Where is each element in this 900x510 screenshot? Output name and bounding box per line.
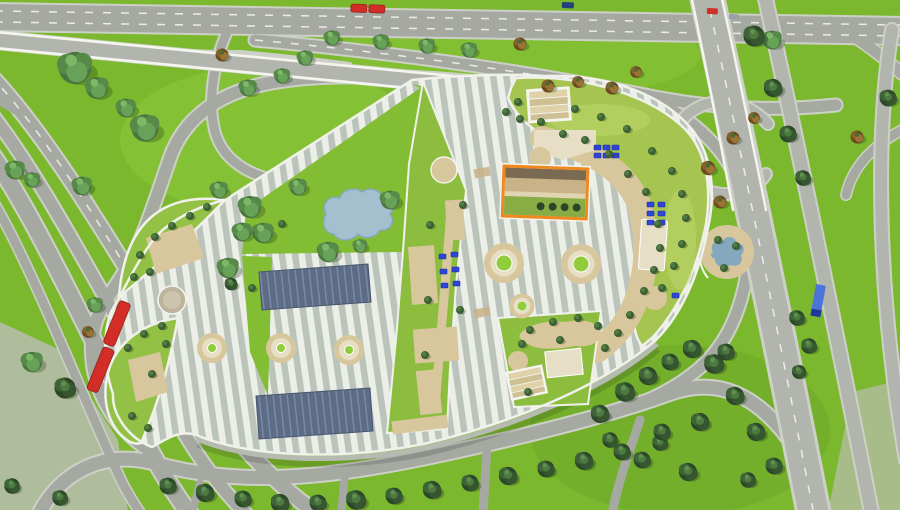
gray-car bbox=[729, 14, 739, 19]
bench bbox=[594, 145, 601, 150]
skylight-planter bbox=[334, 335, 364, 365]
access-lane bbox=[341, 474, 345, 510]
navy-car bbox=[562, 2, 574, 8]
orange-courtyard bbox=[499, 163, 591, 222]
bench bbox=[603, 145, 610, 150]
bench bbox=[672, 293, 679, 298]
red-car bbox=[707, 8, 718, 14]
southeast-plaza bbox=[545, 348, 584, 378]
bench bbox=[612, 145, 619, 150]
bench bbox=[452, 267, 459, 272]
site-plan-rendering bbox=[0, 0, 900, 510]
solar-panel-array-south bbox=[256, 388, 373, 439]
strip-plaza bbox=[416, 369, 442, 415]
access-lane bbox=[483, 446, 487, 510]
site-plan-canvas bbox=[0, 0, 900, 510]
skylight-planter-large bbox=[484, 243, 524, 283]
bench bbox=[658, 202, 665, 207]
bench bbox=[647, 211, 654, 216]
bench bbox=[453, 281, 460, 286]
bench bbox=[440, 269, 447, 274]
bench bbox=[594, 153, 601, 158]
wing-grass-highlight bbox=[664, 190, 696, 290]
bench bbox=[451, 252, 458, 257]
skylight-planter-large bbox=[561, 244, 601, 284]
bench bbox=[658, 211, 665, 216]
gravel-circle bbox=[158, 286, 186, 314]
strip-plaza bbox=[408, 245, 438, 305]
solar-panel-array-north bbox=[259, 264, 371, 310]
strip-plaza bbox=[413, 327, 459, 364]
skylight-planter-medium bbox=[510, 294, 535, 319]
bench bbox=[647, 202, 654, 207]
skylight-planter bbox=[266, 333, 296, 363]
bench bbox=[441, 283, 448, 288]
bench bbox=[647, 220, 654, 225]
bench bbox=[439, 254, 446, 259]
skylight-planter bbox=[197, 333, 227, 363]
